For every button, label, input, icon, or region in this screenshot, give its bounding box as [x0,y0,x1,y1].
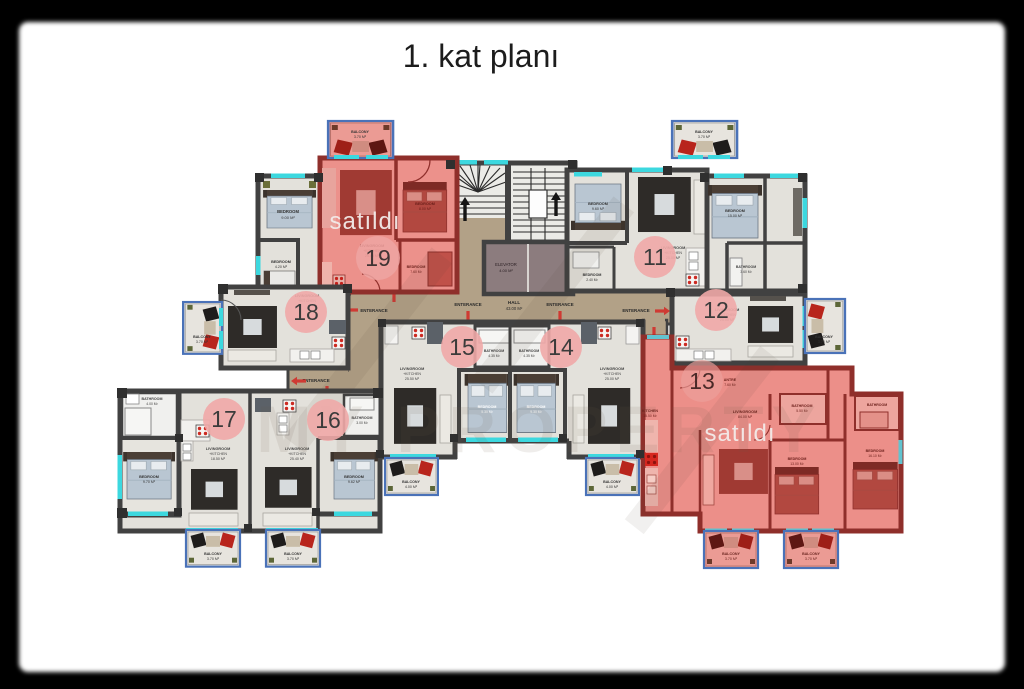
svg-text:BEDROOM: BEDROOM [271,260,291,264]
svg-text:4.00 M²: 4.00 M² [606,485,619,489]
svg-text:3.70 M²: 3.70 M² [805,557,818,561]
svg-text:ENTERANCE: ENTERANCE [454,302,481,307]
svg-text:BALCONY: BALCONY [802,552,820,556]
svg-text:BATHROOM: BATHROOM [736,265,756,269]
svg-text:9.70 M²: 9.70 M² [143,480,156,484]
svg-text:BALCONY: BALCONY [722,552,740,556]
svg-text:18: 18 [293,299,319,325]
svg-text:BEDROOM: BEDROOM [788,457,807,461]
svg-text:BALCONY: BALCONY [204,552,222,556]
svg-text:BEDROOM: BEDROOM [478,405,497,409]
svg-text:BALCONY: BALCONY [351,130,369,134]
svg-text:BEDROOM: BEDROOM [344,475,364,479]
svg-text:13: 13 [689,368,715,394]
svg-text:BATHROOM: BATHROOM [792,404,813,408]
svg-text:2.40 M²: 2.40 M² [586,278,598,282]
svg-text:5.50 M²: 5.50 M² [796,409,808,413]
svg-text:25.50 M²: 25.50 M² [405,377,420,381]
svg-text:3.70 M²: 3.70 M² [207,557,220,561]
svg-text:15.50 M²: 15.50 M² [643,414,657,418]
svg-text:18.50 M²: 18.50 M² [211,457,226,461]
svg-text:4.00 M²: 4.00 M² [405,485,418,489]
svg-text:BEDROOM: BEDROOM [415,202,435,206]
svg-text:19: 19 [365,245,391,271]
svg-text:BATHROOM: BATHROOM [142,397,163,401]
svg-text:ELEVATOR: ELEVATOR [495,262,517,267]
svg-text:3.70 M²: 3.70 M² [354,135,367,139]
svg-text:BALCONY: BALCONY [402,480,420,484]
svg-text:+KITCHEN: +KITCHEN [288,452,306,456]
svg-text:16.10 M²: 16.10 M² [868,454,882,458]
svg-text:BATHROOM: BATHROOM [867,403,887,407]
svg-text:satıldı: satıldı [329,208,400,235]
svg-text:3.00 M²: 3.00 M² [356,421,368,425]
svg-text:3.70 M²: 3.70 M² [725,557,738,561]
svg-text:ENTERANCE: ENTERANCE [622,308,649,313]
svg-text:HALL: HALL [508,300,520,305]
svg-text:9.30 M²: 9.30 M² [530,410,542,414]
svg-text:BEDROOM: BEDROOM [588,202,608,206]
svg-text:BATHROOM: BATHROOM [352,416,373,420]
svg-text:4.35 M²: 4.35 M² [523,354,535,358]
svg-text:+KITCHEN: +KITCHEN [403,372,421,376]
svg-text:BEDROOM: BEDROOM [866,449,885,453]
svg-text:17: 17 [211,406,237,432]
svg-text:BALCONY: BALCONY [193,335,211,339]
svg-text:8.00 M²: 8.00 M² [419,207,432,211]
svg-text:1. kat planı: 1. kat planı [403,38,560,74]
svg-text:14: 14 [548,334,574,360]
svg-text:9.62 M²: 9.62 M² [348,480,361,484]
svg-text:11: 11 [643,244,667,270]
svg-text:43.00 M²: 43.00 M² [506,306,523,311]
svg-text:satıldı: satıldı [704,420,775,447]
svg-text:BALCONY: BALCONY [284,552,302,556]
svg-text:4.20 M²: 4.20 M² [275,265,288,269]
svg-text:BALCONY: BALCONY [603,480,621,484]
svg-text:13.00 M²: 13.00 M² [790,462,804,466]
svg-text:KITCHEN: KITCHEN [642,409,658,413]
svg-text:3.70 M²: 3.70 M² [196,340,209,344]
svg-text:BEDROOM: BEDROOM [527,405,546,409]
svg-text:84.00 M²: 84.00 M² [738,415,753,419]
svg-text:+KITCHEN: +KITCHEN [209,452,227,456]
svg-text:+KITCHEN: +KITCHEN [603,372,621,376]
svg-text:4.00 M²: 4.00 M² [499,268,513,273]
svg-text:BEDROOM: BEDROOM [725,209,745,213]
svg-text:3.70 M²: 3.70 M² [287,557,300,561]
svg-text:BALCONY: BALCONY [695,130,713,134]
svg-text:ENTERANCE: ENTERANCE [302,378,329,383]
svg-text:15: 15 [449,334,475,360]
svg-text:BALCONY: BALCONY [815,335,833,339]
svg-text:BEDROOM: BEDROOM [139,475,159,479]
svg-text:12: 12 [703,297,729,323]
svg-text:3.60 M²: 3.60 M² [740,270,752,274]
svg-text:9.00 M²: 9.00 M² [281,215,295,220]
svg-text:LIVINGROOM: LIVINGROOM [600,367,624,371]
svg-text:3.70 M²: 3.70 M² [818,340,831,344]
svg-text:15.00 M²: 15.00 M² [728,214,743,218]
svg-text:25.00 M²: 25.00 M² [605,377,620,381]
svg-text:3.70 M²: 3.70 M² [698,135,711,139]
svg-text:BEDROOM: BEDROOM [277,209,299,214]
svg-text:LIVINGROOM: LIVINGROOM [400,367,424,371]
svg-text:4.00 M²: 4.00 M² [146,402,158,406]
svg-text:LIVINGROOM: LIVINGROOM [206,447,230,451]
svg-text:5.30 M²: 5.30 M² [481,410,493,414]
svg-text:16: 16 [315,407,341,433]
svg-text:25.40 M²: 25.40 M² [290,457,305,461]
